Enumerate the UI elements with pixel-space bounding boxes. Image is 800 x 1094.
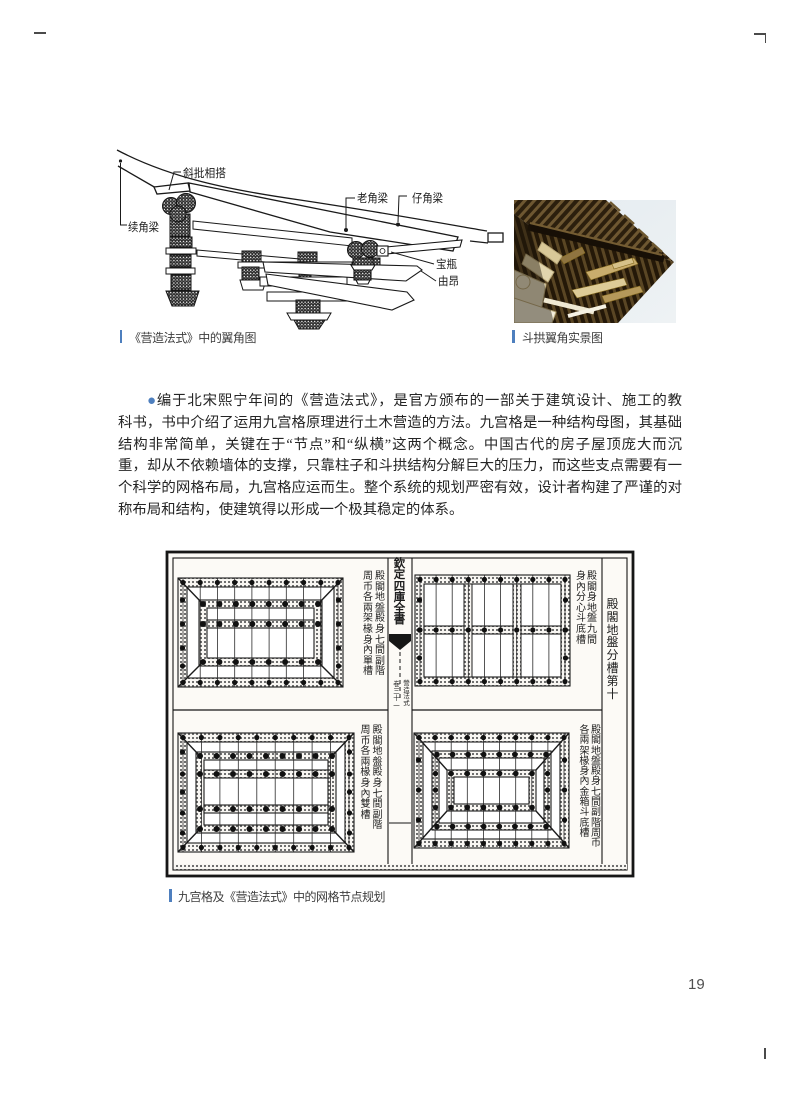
svg-text:仔角梁: 仔角梁 [412,191,443,205]
svg-text:由昂: 由昂 [438,274,459,288]
svg-text:老角梁: 老角梁 [357,191,388,205]
svg-text:宝瓶: 宝瓶 [436,257,457,271]
svg-text:续角梁: 续角梁 [128,220,159,234]
svg-text:斜批相搭: 斜批相搭 [183,166,226,180]
